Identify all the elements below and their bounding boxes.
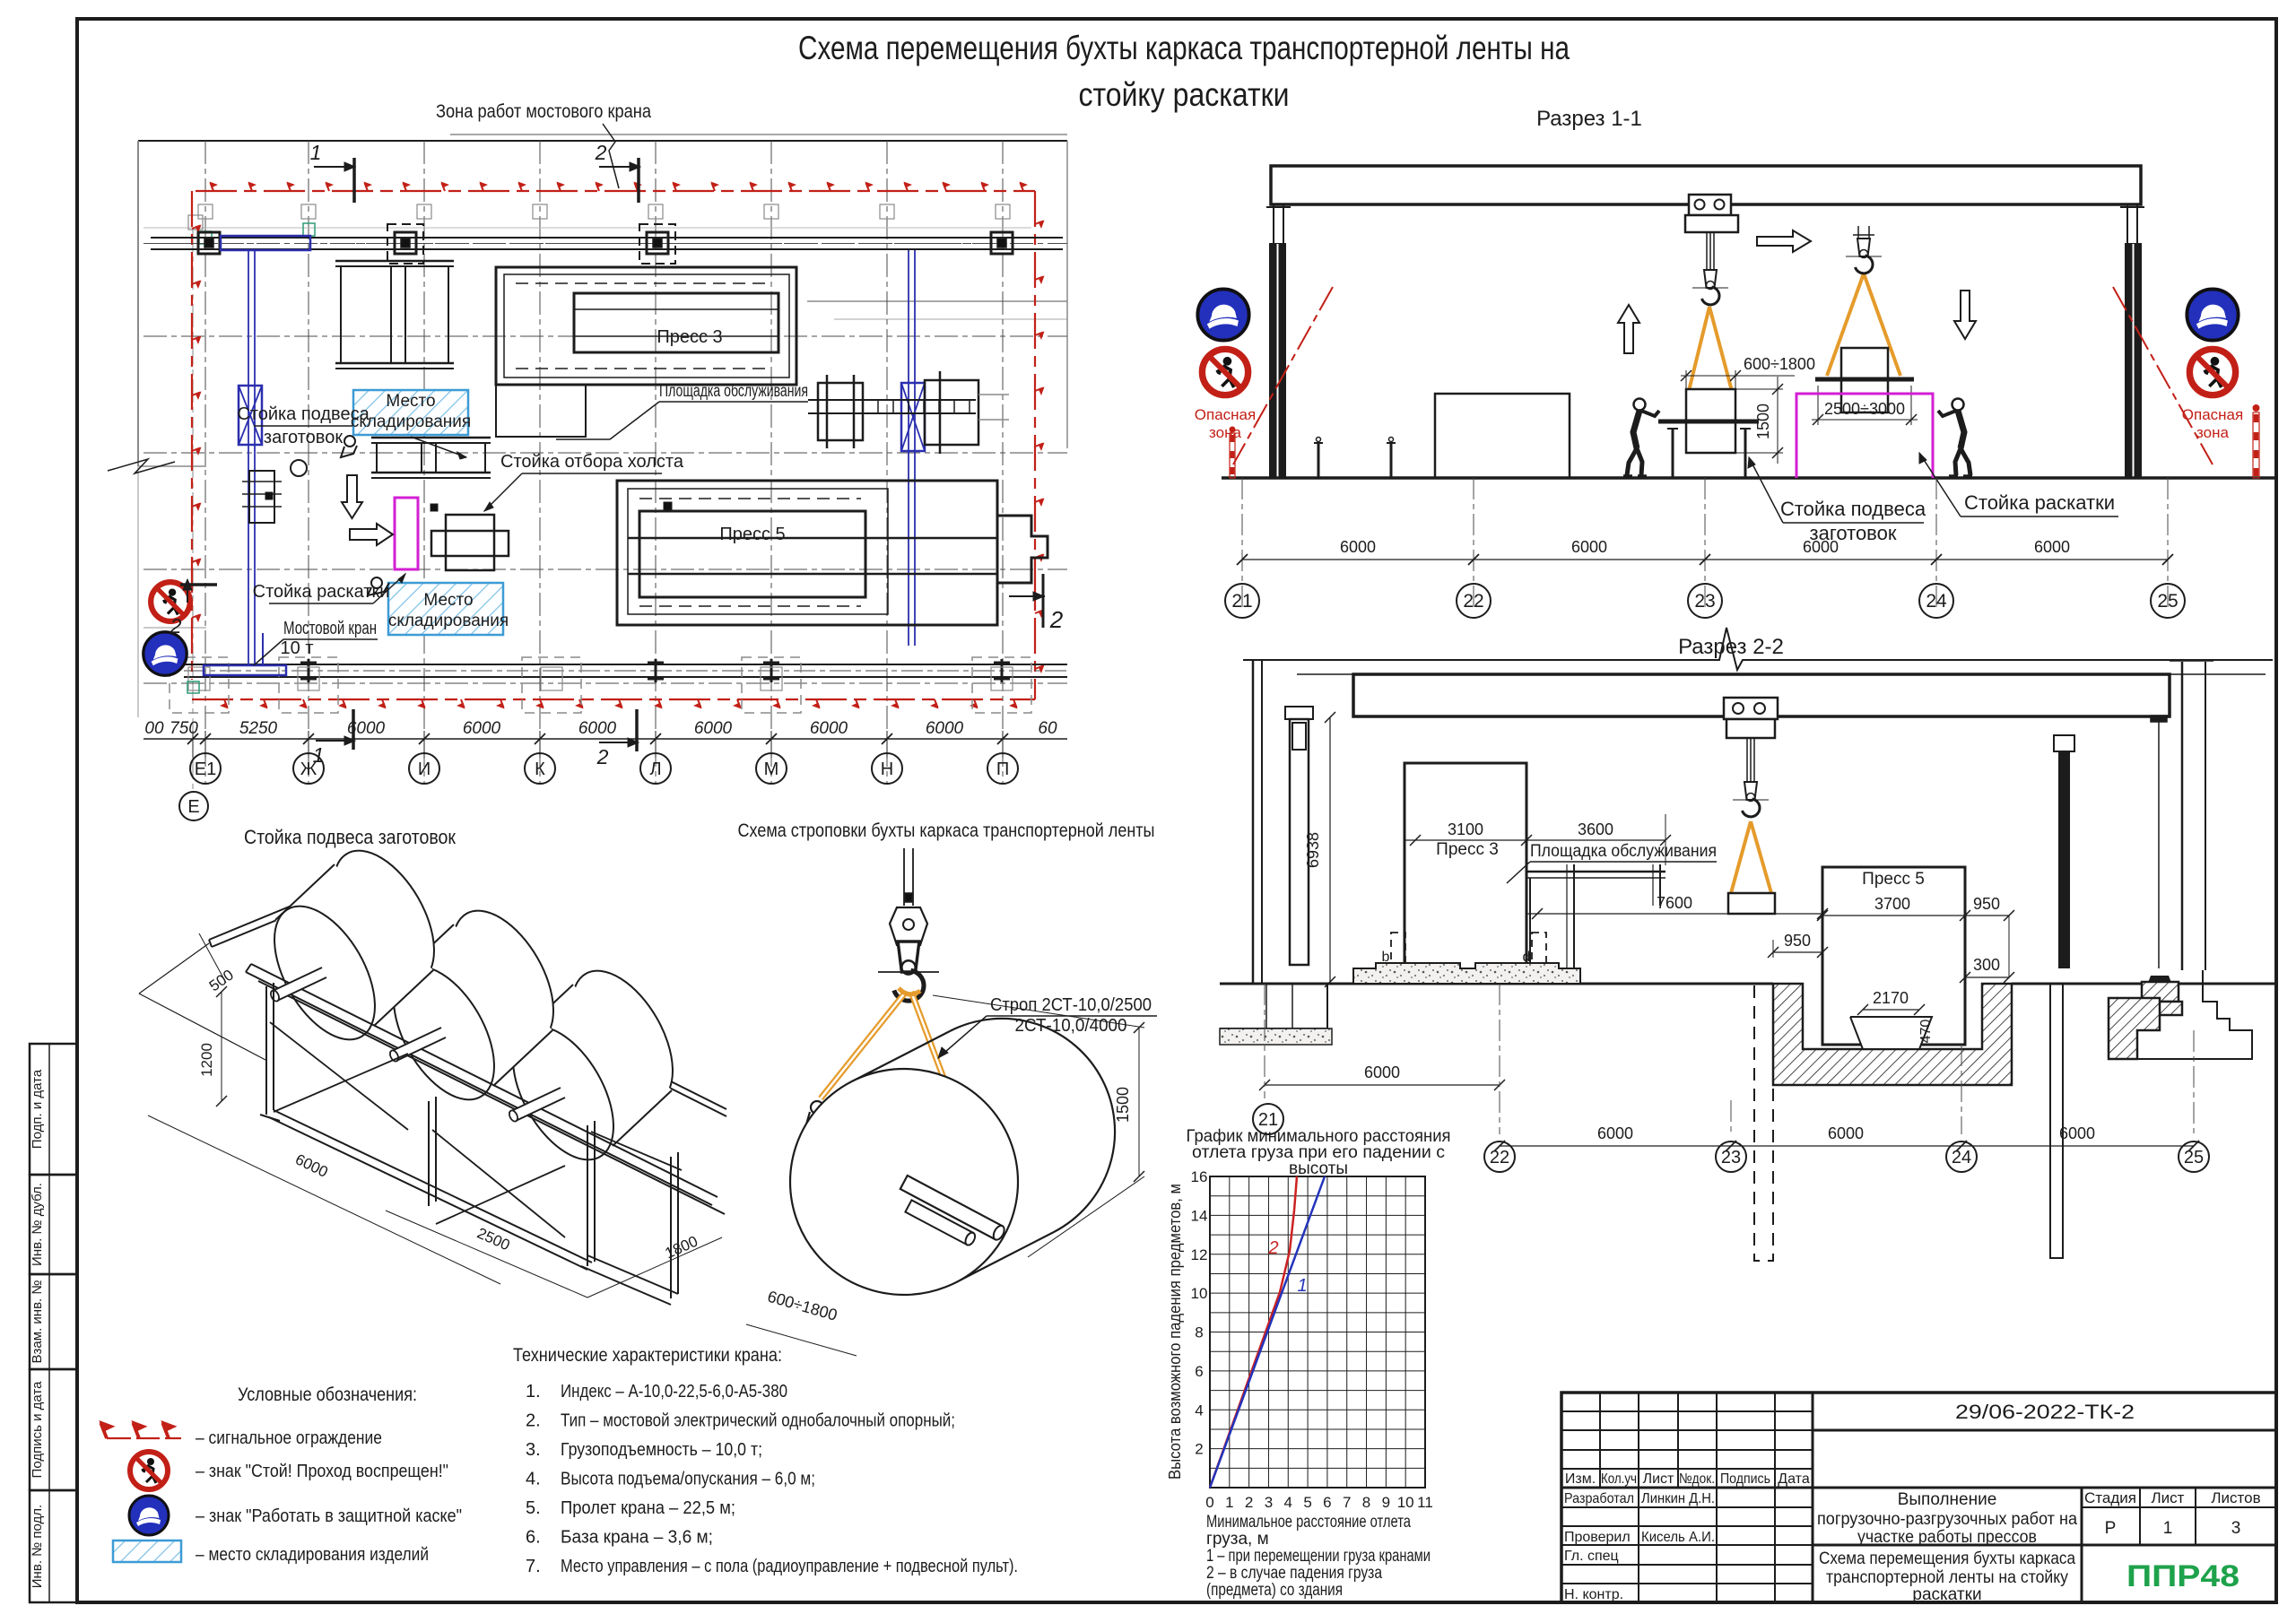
svg-text:4: 4 [1195,1402,1203,1419]
svg-text:И: И [418,759,430,779]
svg-text:1: 1 [2163,1519,2173,1538]
svg-text:груза, м: груза, м [1206,1530,1269,1549]
svg-text:База крана – 3,6 м;: База крана – 3,6 м; [561,1528,713,1548]
svg-text:10: 10 [1191,1285,1208,1302]
svg-text:14: 14 [1191,1207,1208,1224]
svg-text:зона: зона [2196,424,2229,441]
svg-text:29/06-2022-ТК-2: 29/06-2022-ТК-2 [1955,1401,2135,1423]
svg-text:7: 7 [1343,1494,1351,1511]
svg-text:Опасная: Опасная [2182,406,2243,423]
svg-text:Инв. № дубл.: Инв. № дубл. [30,1183,45,1266]
svg-text:7.: 7. [526,1557,541,1576]
svg-text:Кисель А.И.: Кисель А.И. [1641,1530,1715,1545]
svg-text:– сигнальное ограждение: – сигнальное ограждение [196,1428,382,1448]
svg-text:Опасная: Опасная [1195,406,1256,423]
svg-text:Н: Н [881,759,893,779]
svg-text:10: 10 [1397,1494,1414,1511]
svg-text:6.: 6. [526,1528,541,1548]
svg-text:6: 6 [1323,1494,1331,1511]
svg-text:1200: 1200 [198,1043,215,1077]
svg-text:М: М [764,759,779,779]
svg-text:заготовок: заготовок [264,428,343,447]
svg-text:8: 8 [1195,1324,1203,1341]
svg-text:Кол.уч: Кол.уч [1601,1471,1637,1487]
svg-text:2 – в случае падения груза: 2 – в случае падения груза [1206,1564,1382,1583]
svg-text:8: 8 [1362,1494,1370,1511]
svg-text:Лист: Лист [1643,1471,1674,1487]
svg-text:2СТ-10,0/4000: 2СТ-10,0/4000 [1015,1016,1127,1036]
svg-text:1: 1 [310,141,322,164]
svg-text:Е1: Е1 [195,759,216,779]
svg-text:– место складирования изделий: – место складирования изделий [196,1545,429,1565]
svg-text:Подпись: Подпись [1720,1471,1770,1487]
svg-text:Место: Место [386,392,435,411]
svg-text:Высота возможного падения пред: Высота возможного падения предметов, м [1166,1184,1184,1480]
svg-text:5: 5 [1303,1494,1311,1511]
svg-text:Схема строповки бухты каркаса: Схема строповки бухты каркаса транспорте… [738,820,1155,841]
svg-text:3: 3 [2231,1519,2241,1538]
svg-text:Разработал: Разработал [1564,1491,1634,1506]
svg-text:2: 2 [1195,1441,1203,1458]
svg-text:16: 16 [1191,1168,1208,1185]
svg-text:0: 0 [1205,1494,1213,1511]
svg-text:6: 6 [1195,1363,1203,1380]
svg-text:Стойка подвеса: Стойка подвеса [237,404,370,424]
svg-text:Схема перемещения бухты каркас: Схема перемещения бухты каркаса [1819,1549,2075,1568]
svg-text:6000: 6000 [1597,1124,1633,1142]
svg-text:раскатки: раскатки [1912,1585,1981,1604]
svg-text:(предмета) со здания: (предмета) со здания [1206,1581,1343,1600]
svg-text:Мостовой кран: Мостовой кран [283,619,377,638]
svg-text:2: 2 [1049,606,1064,633]
svg-text:Высота подъема/опускания – 6,0: Высота подъема/опускания – 6,0 м; [561,1470,815,1489]
svg-text:9: 9 [1382,1494,1390,1511]
svg-text:2.: 2. [526,1411,541,1431]
svg-text:Индекс – А-10,0-22,5-6,0-А5-38: Индекс – А-10,0-22,5-6,0-А5-380 [561,1382,787,1402]
svg-text:3100: 3100 [1448,820,1483,838]
svg-text:600÷1800: 600÷1800 [1744,355,1815,373]
svg-text:6000: 6000 [2034,538,2070,556]
svg-text:Зона работ мостового крана: Зона работ мостового крана [436,101,651,122]
svg-text:1500: 1500 [1114,1087,1132,1123]
svg-text:2170: 2170 [1873,989,1909,1007]
svg-text:1: 1 [1297,1276,1307,1296]
svg-text:2: 2 [1245,1494,1253,1511]
svg-text:участке работы прессов: участке работы прессов [1857,1528,2037,1547]
svg-text:Р: Р [2105,1519,2117,1538]
svg-text:Пресс 3: Пресс 3 [657,327,722,347]
svg-text:5250: 5250 [239,719,278,738]
svg-text:Гл. спец: Гл. спец [1564,1549,1619,1564]
svg-text:3: 3 [1265,1494,1273,1511]
svg-text:00: 00 [144,719,164,738]
svg-text:Изм.: Изм. [1565,1471,1596,1487]
svg-text:Пресс 5: Пресс 5 [1862,870,1925,889]
svg-text:Пресс 5: Пресс 5 [719,525,785,544]
svg-text:950: 950 [1973,895,2000,913]
svg-text:Л: Л [649,759,661,779]
svg-text:Листов: Листов [2211,1489,2260,1506]
svg-text:6938: 6938 [1304,832,1322,868]
svg-text:24: 24 [1926,591,1947,612]
svg-text:Грузоподъемность – 10,0 т;: Грузоподъемность – 10,0 т; [561,1440,762,1460]
svg-text:11: 11 [1417,1494,1433,1511]
svg-text:23: 23 [1721,1148,1741,1167]
svg-text:6000: 6000 [1828,1124,1864,1142]
svg-text:6000: 6000 [694,719,733,738]
svg-text:22: 22 [1463,591,1483,612]
svg-text:2: 2 [595,141,607,164]
svg-text:2: 2 [170,614,182,638]
svg-text:Стойка отбора холста: Стойка отбора холста [500,452,684,472]
svg-text:Тип – мостовой электрический о: Тип – мостовой электрический однобалочны… [561,1411,955,1431]
svg-text:К: К [535,759,545,779]
svg-text:24: 24 [1952,1148,1971,1167]
svg-text:Стойка подвеса: Стойка подвеса [1780,498,1926,520]
svg-text:1: 1 [313,743,325,767]
svg-text:Н. контр.: Н. контр. [1564,1587,1623,1602]
svg-text:22: 22 [1490,1148,1509,1167]
svg-text:Строп 2СТ-10,0/2500: Строп 2СТ-10,0/2500 [990,995,1152,1015]
svg-text:6000: 6000 [463,719,501,738]
svg-text:Е: Е [187,797,199,817]
svg-text:1 – при перемещении груза кран: 1 – при перемещении груза кранами [1206,1547,1431,1566]
svg-text:6000: 6000 [1571,538,1607,556]
svg-text:Технические характеристики кра: Технические характеристики крана: [513,1345,782,1366]
svg-text:1: 1 [1225,1494,1233,1511]
svg-text:23: 23 [1694,591,1715,612]
svg-text:Подп. и дата: Подп. и дата [30,1069,45,1149]
svg-text:зона: зона [1209,424,1241,441]
svg-text:10 т: 10 т [281,638,314,658]
svg-text:6000: 6000 [1803,538,1839,556]
svg-text:6000: 6000 [1340,538,1376,556]
svg-text:6000: 6000 [926,719,964,738]
svg-text:3700: 3700 [1874,895,1910,913]
svg-text:ППР48: ППР48 [2126,1559,2239,1593]
svg-text:Пресс 3: Пресс 3 [1436,840,1499,859]
svg-text:2: 2 [596,745,609,768]
svg-text:25: 25 [2184,1148,2204,1167]
svg-text:d: d [1523,950,1531,965]
svg-text:21: 21 [1231,591,1252,612]
svg-text:Стадия: Стадия [2084,1489,2136,1506]
svg-text:Место: Место [423,591,473,610]
svg-text:3600: 3600 [1578,820,1613,838]
svg-text:6000: 6000 [578,719,617,738]
svg-text:Подпись и дата: Подпись и дата [30,1381,45,1479]
svg-text:П: П [996,759,1009,779]
svg-text:6000: 6000 [1364,1063,1400,1081]
svg-text:Схема перемещения бухты каркас: Схема перемещения бухты каркаса транспор… [798,30,1570,66]
svg-text:Инв. № подл.: Инв. № подл. [30,1505,45,1588]
svg-text:12: 12 [1191,1246,1208,1263]
svg-text:стойку раскатки: стойку раскатки [1079,76,1290,113]
svg-text:Проверил: Проверил [1564,1530,1631,1545]
svg-text:4.: 4. [526,1470,541,1489]
svg-text:1.: 1. [526,1382,541,1402]
svg-text:Пролет крана – 22,5 м;: Пролет крана – 22,5 м; [561,1498,735,1518]
svg-text:№док.: №док. [1679,1471,1715,1487]
svg-text:7600: 7600 [1657,894,1692,912]
svg-text:– знак "Стой! Проход воспрещен: – знак "Стой! Проход воспрещен!" [196,1462,448,1481]
svg-text:высоты: высоты [1289,1159,1348,1178]
svg-text:Разрез 1-1: Разрез 1-1 [1536,107,1642,131]
svg-text:4: 4 [1284,1494,1292,1511]
svg-text:b: b [1382,950,1390,965]
svg-text:25: 25 [2157,591,2178,612]
svg-text:6000: 6000 [810,719,848,738]
svg-text:Стойка подвеса заготовок: Стойка подвеса заготовок [244,826,456,848]
svg-text:Стойка раскатки: Стойка раскатки [1964,491,2115,514]
svg-text:300: 300 [1973,956,2000,974]
svg-text:транспортерной ленты на стойку: транспортерной ленты на стойку [1826,1568,2068,1587]
svg-text:Площадка обслуживания: Площадка обслуживания [659,382,808,401]
svg-text:950: 950 [1784,932,1811,950]
svg-text:Выполнение: Выполнение [1898,1490,1997,1509]
svg-text:Линкин Д.Н.: Линкин Д.Н. [1641,1491,1715,1506]
svg-text:60: 60 [1038,719,1057,738]
svg-text:складирования: складирования [388,612,509,630]
svg-text:Лист: Лист [2152,1489,2185,1506]
svg-text:3.: 3. [526,1440,541,1460]
svg-text:Условные обозначения:: Условные обозначения: [238,1384,417,1405]
svg-text:1500: 1500 [1754,404,1772,439]
svg-text:Площадка обслуживания: Площадка обслуживания [1530,842,1717,861]
svg-text:2500÷3000: 2500÷3000 [1824,400,1905,418]
svg-text:750: 750 [170,719,198,738]
svg-text:Взам. инв. №: Взам. инв. № [30,1280,45,1364]
svg-text:Минимальное расстояние отлета: Минимальное расстояние отлета [1206,1513,1411,1532]
svg-text:470: 470 [1918,1020,1934,1044]
svg-text:погрузочно-разгрузочных работ: погрузочно-разгрузочных работ на [1817,1510,2077,1529]
svg-text:Место управления – с пола (рад: Место управления – с пола (радиоуправлен… [561,1557,1018,1576]
svg-text:2: 2 [1267,1238,1278,1258]
svg-text:6000: 6000 [2059,1124,2095,1142]
svg-text:Дата: Дата [1778,1471,1810,1487]
svg-text:– знак "Работать в защитной ка: – знак "Работать в защитной каске" [196,1506,462,1526]
svg-text:Стойка раскатки: Стойка раскатки [253,582,390,602]
svg-text:5.: 5. [526,1498,541,1518]
